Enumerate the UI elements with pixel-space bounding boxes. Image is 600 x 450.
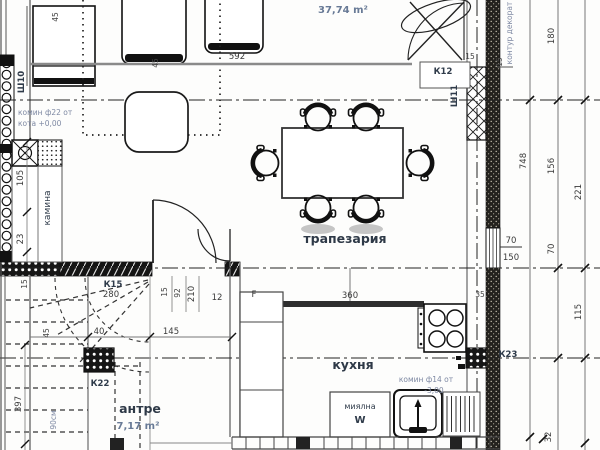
chimney-k23 <box>466 348 486 368</box>
mark-k23: К23 <box>499 350 518 360</box>
dim-156: 156 <box>547 158 557 174</box>
hall-label: антре <box>119 401 161 416</box>
dim-35: 35 <box>475 290 485 299</box>
dim-32: 32 <box>544 432 554 443</box>
fireplace-label: камина <box>43 191 53 226</box>
dim-45-chair: 45 <box>151 58 160 68</box>
dim-70-right: 70 <box>547 244 557 255</box>
dim-145: 145 <box>163 327 179 337</box>
dim-45-stair: 45 <box>42 328 51 338</box>
dim-592: 592 <box>229 52 245 62</box>
mark-k15: К15 <box>104 280 123 290</box>
chair <box>301 196 336 222</box>
hall-area-label: 7,17 m² <box>117 421 160 432</box>
chair <box>301 105 336 131</box>
dim-15-wall: 15 <box>465 52 475 61</box>
coffee-table <box>125 92 188 152</box>
note-chimney14-line1: комин ф14 от <box>399 375 454 384</box>
chair <box>407 146 433 181</box>
hall-kitchen-wall <box>230 262 240 437</box>
bottom-wall <box>110 437 500 450</box>
armchair <box>205 0 263 53</box>
floor-plan-canvas: 37,74 m² 592 45 45 Ш10 комин ф22 от кота… <box>0 0 600 450</box>
chimney-k22 <box>84 348 114 372</box>
dimension-lines-right <box>530 0 585 450</box>
living-hall-door <box>153 200 216 263</box>
note-chimney14-line2: -3,00 <box>424 386 444 395</box>
dim-45-sofa: 45 <box>51 12 60 22</box>
note-stair-height: 90см <box>49 410 58 429</box>
dim-150-window: 150 <box>503 253 519 263</box>
kitchen-counter <box>240 292 283 437</box>
dim-221: 221 <box>574 184 584 200</box>
dim-360: 360 <box>342 291 358 301</box>
armchair <box>122 0 186 64</box>
mark-sh10: Ш10 <box>17 71 27 93</box>
dim-40: 40 <box>94 327 105 337</box>
dim-397: 397 <box>14 396 24 412</box>
chair <box>349 105 384 131</box>
sofa <box>27 6 95 86</box>
dim-15-stair: 15 <box>20 279 29 289</box>
dining-table <box>282 128 403 198</box>
dim-115: 115 <box>574 304 584 320</box>
drainer <box>443 392 480 436</box>
dim-748: 748 <box>519 153 529 169</box>
dishwasher-letter: W <box>354 415 365 426</box>
note-chimney22-line2: кота +0,00 <box>18 119 62 128</box>
chair <box>253 146 279 181</box>
dim-92: 92 <box>173 288 182 298</box>
floor-plan-drawing: 37,74 m² 592 45 45 Ш10 комин ф22 от кота… <box>0 0 600 450</box>
dim-210: 210 <box>187 286 197 302</box>
note-decor-contour: контур декорат <box>505 1 514 64</box>
chair <box>349 196 384 222</box>
dining-set <box>253 105 432 234</box>
mark-k12: К12 <box>434 67 453 77</box>
kitchen-label: кухня <box>332 357 373 372</box>
mark-sh11: Ш11 <box>450 85 460 107</box>
dim-280: 280 <box>103 290 119 300</box>
sink-icon <box>394 390 442 437</box>
interior-wall-band <box>0 262 240 276</box>
dim-15-contour: 15 <box>495 57 504 67</box>
dining-room-label: трапезария <box>303 231 386 246</box>
mark-f: F <box>252 290 257 300</box>
dim-15-door: 15 <box>160 287 169 297</box>
dishwasher-label: миялна <box>344 402 375 411</box>
dim-70-window: 70 <box>506 236 517 246</box>
dim-12: 12 <box>212 293 223 303</box>
living-area-label: 37,74 m² <box>318 5 368 16</box>
stove-icon <box>418 304 466 352</box>
mark-k22: К22 <box>91 379 110 389</box>
dim-180: 180 <box>547 28 557 44</box>
dim-105: 105 <box>16 170 26 186</box>
note-chimney22-line1: комин ф22 от <box>18 108 73 117</box>
dim-23: 23 <box>16 234 26 245</box>
